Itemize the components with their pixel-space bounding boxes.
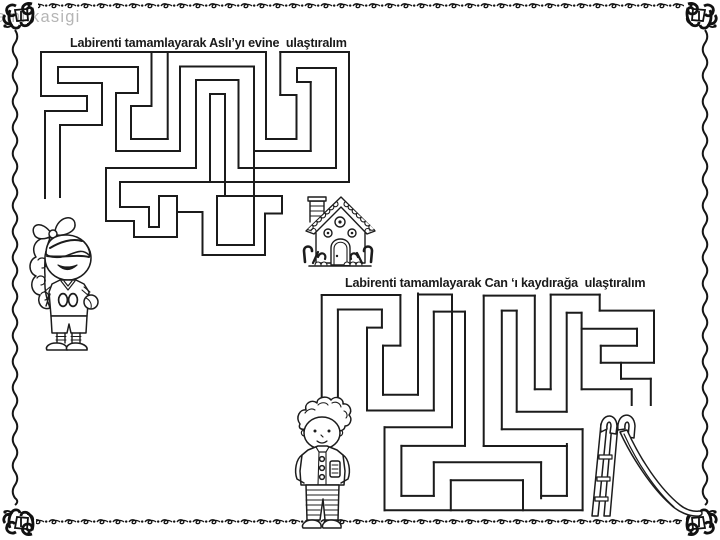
svg-text:Labirenti tamamlayarak Aslı’yı: Labirenti tamamlayarak Aslı’yı evine ula… — [70, 36, 347, 50]
svg-text:Labirenti tamamlayarak Can ‘ı: Labirenti tamamlayarak Can ‘ı kaydırağa … — [345, 276, 645, 290]
